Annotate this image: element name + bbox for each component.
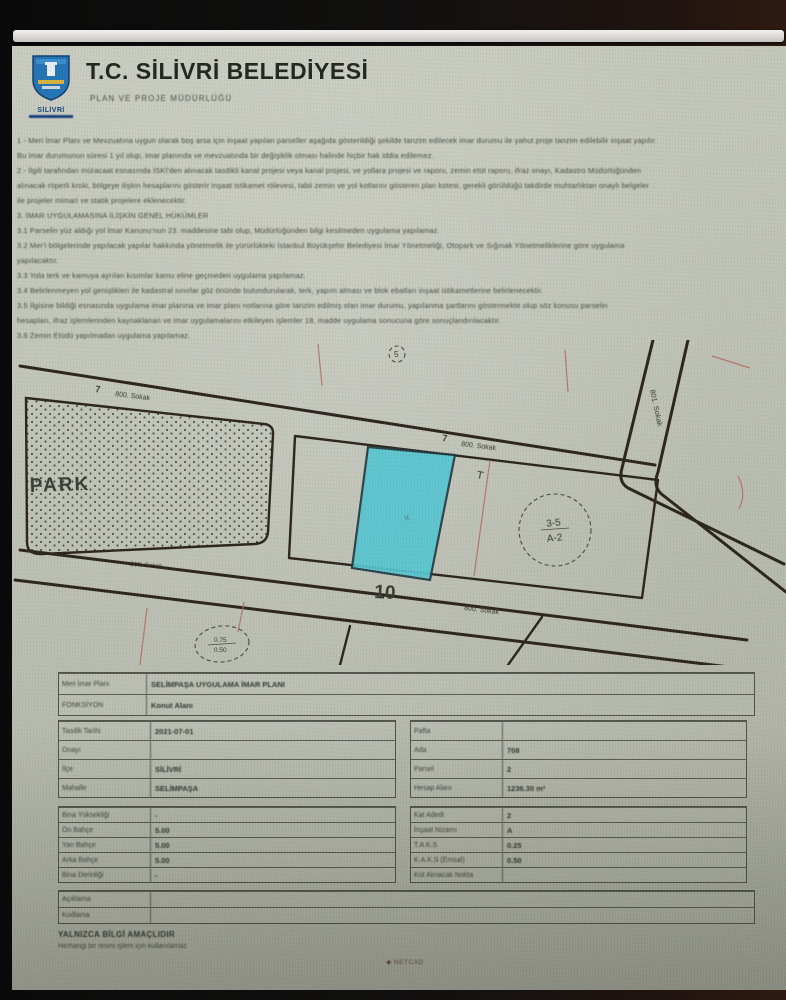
shield-icon — [30, 54, 72, 102]
row-label: K.A.K.S (Emsal) — [411, 853, 503, 867]
cadastral-line — [565, 350, 568, 392]
parcel-id-table: Pafta Ada 708 Parsel 2 Hesap Alanı 1236.… — [410, 720, 747, 798]
row-label: FONKSİYON — [59, 695, 147, 715]
netcad-label: NETCAD — [394, 959, 424, 966]
zoning-circle — [519, 494, 591, 566]
row-label: Ön Bahçe — [59, 823, 151, 837]
row-label: Kodlama — [59, 908, 151, 923]
row-value: 2021-07-01 — [151, 727, 395, 736]
plan-note-line: yapılacaktır. — [17, 256, 781, 271]
cadastral-line — [738, 476, 743, 509]
table-row: Kot Alınacak Nokta — [411, 867, 746, 882]
row-label: İnşaat Nizamı — [411, 823, 503, 837]
row-label: Parsel — [411, 760, 503, 778]
table-row: Açıklama — [59, 891, 754, 907]
netcad-watermark: ◆ NETCAD — [350, 958, 460, 966]
row-label: Bina Yüksekliği — [59, 808, 151, 822]
cadastral-line — [318, 344, 322, 386]
row-label: Bina Derinliği — [59, 868, 151, 882]
approval-location-table: Tasdik Tarihi 2021-07-01 Onayı İlçe SİLİ… — [58, 720, 396, 798]
table-row: Meri İmar Planı SELİMPAŞA UYGULAMA İMAR … — [59, 673, 754, 694]
table-row: Arka Bahçe 5.00 — [59, 852, 395, 867]
disclaimer-subtitle: Herhangi bir resmi işlem için kullanılam… — [58, 943, 187, 950]
row-label: Tasdik Tarihi — [59, 722, 151, 740]
plan-note-line: 3.1 Parselin yüz aldığı yol İmar Kanunu'… — [17, 226, 781, 241]
screen-photo-frame: SİLİVRİ T.C. SİLİVRİ BELEDİYESİ PLAN VE … — [0, 0, 786, 1000]
table-row: K.A.K.S (Emsal) 0.50 — [411, 852, 746, 867]
street-label-middle: 800. Sokak — [461, 441, 497, 452]
table-row: Parsel 2 — [411, 759, 746, 778]
parcel-divider — [340, 626, 350, 665]
row-value: SELİMPAŞA — [151, 784, 395, 793]
row-value: 2 — [503, 765, 746, 774]
plan-note-line: hesapları, ifraz işlemlerinden kaynaklan… — [17, 316, 781, 331]
row-value: 5.00 — [151, 856, 395, 865]
row-value: 5.00 — [151, 841, 395, 850]
row-label: Mahalle — [59, 779, 151, 797]
row-label: Kat Adedi — [411, 808, 503, 822]
plan-note-line: 3.5 İlgisine bildiği esnasında uygulama … — [17, 301, 781, 316]
zoning-note-top: 3-5 — [546, 517, 562, 529]
table-row: Kodlama — [59, 907, 754, 923]
table-row: Kat Adedi 2 — [411, 807, 746, 822]
table-row: Ada 708 — [411, 740, 746, 759]
plan-note-line: 3.3 Yola terk ve kamuya ayrılan kısımlar… — [17, 271, 781, 286]
road-right-edge-1 — [621, 340, 784, 564]
remarks-table: Açıklama Kodlama — [58, 890, 755, 924]
table-row: Yan Bahçe 5.00 — [59, 837, 395, 852]
cadastral-line — [140, 608, 147, 665]
row-label: Arka Bahçe — [59, 853, 151, 867]
diamond-icon: ◆ — [386, 959, 392, 966]
row-label: Onayı — [59, 741, 151, 759]
block-number-10: 10 — [374, 582, 396, 604]
plan-notes-block: 1 - Meri İmar Planı ve Mevzuatına uygun … — [17, 136, 781, 346]
corner-note: 5 — [394, 350, 399, 359]
plan-note-line: Bu imar durumunun süresi 1 yıl olup, ima… — [17, 151, 781, 166]
table-row: Onayı — [59, 740, 395, 759]
block-number-7-left: 7 — [95, 384, 101, 395]
table-row: Hesap Alanı 1236.30 m² — [411, 778, 746, 797]
row-label: Yan Bahçe — [59, 838, 151, 852]
disclaimer-title: YALNIZCA BİLGİ AMAÇLIDIR — [58, 930, 175, 939]
table-row: Ön Bahçe 5.00 — [59, 822, 395, 837]
t-mark: T — [475, 469, 484, 482]
page-subtitle: PLAN VE PROJE MÜDÜRLÜĞÜ — [90, 94, 232, 103]
cadastral-line — [712, 356, 750, 368]
ratio-top: 0.75 — [214, 637, 227, 644]
site-plan-map: PARK ✕ 3-5 A-2 T 7 800. Sokak 7 800. Sok… — [12, 340, 786, 665]
street-label-top: 800. Sokak — [115, 391, 151, 402]
row-value: 2 — [503, 811, 746, 820]
block-number-7-right: 7 — [442, 433, 448, 444]
street-label-bottom: 800. Sokak — [464, 605, 500, 616]
top-scrollbar[interactable] — [13, 30, 784, 42]
row-label: Meri İmar Planı — [59, 674, 147, 694]
table-row: T.A.K.S 0.25 — [411, 837, 746, 852]
imar-durumu-document: SİLİVRİ T.C. SİLİVRİ BELEDİYESİ PLAN VE … — [12, 46, 786, 990]
table-row: İlçe SİLİVRİ — [59, 759, 395, 778]
ratio-bottom: 0.50 — [214, 647, 227, 654]
row-value: 5.00 — [151, 826, 395, 835]
table-row: Pafta — [411, 721, 746, 740]
row-value: - — [151, 871, 395, 880]
row-label: Kot Alınacak Nokta — [411, 868, 503, 882]
plan-note-line: 2 - İlgili tarafından müracaat esnasında… — [17, 166, 781, 181]
row-value: 0.50 — [503, 856, 746, 865]
logo-caption: SİLİVRİ — [26, 107, 76, 114]
plan-note-line: alınacak röperli kroki, bölgeye ilişkin … — [17, 181, 781, 196]
street-label-right: 801. Sokak — [648, 389, 665, 428]
plan-note-line: 3. İMAR UYGULAMASINA İLİŞKİN GENEL HÜKÜM… — [17, 211, 781, 226]
setback-table: Bina Yüksekliği - Ön Bahçe 5.00 Yan Bahç… — [58, 806, 396, 883]
row-value: - — [151, 811, 395, 820]
row-label: Ada — [411, 741, 503, 759]
row-value: A — [503, 826, 746, 835]
plan-note-line: 1 - Meri İmar Planı ve Mevzuatına uygun … — [17, 136, 781, 151]
row-value: SELİMPAŞA UYGULAMA İMAR PLANI — [147, 680, 754, 689]
table-row: Mahalle SELİMPAŞA — [59, 778, 395, 797]
row-label: Pafta — [411, 722, 503, 740]
row-label: Hesap Alanı — [411, 779, 503, 797]
row-value: 708 — [503, 746, 746, 755]
logo-underline — [29, 115, 73, 118]
row-label: İlçe — [59, 760, 151, 778]
zoning-parameters-table: Kat Adedi 2 İnşaat Nizamı A T.A.K.S 0.25… — [410, 806, 747, 883]
row-label: T.A.K.S — [411, 838, 503, 852]
table-row: İnşaat Nizamı A — [411, 822, 746, 837]
municipality-logo: SİLİVRİ — [26, 54, 76, 118]
park-label: PARK — [29, 474, 90, 497]
table-row: FONKSİYON Konut Alanı — [59, 694, 754, 715]
plan-name-table: Meri İmar Planı SELİMPAŞA UYGULAMA İMAR … — [58, 672, 755, 716]
row-value: Konut Alanı — [147, 701, 754, 710]
row-label: Açıklama — [59, 892, 151, 907]
plan-note-line: ile projeler mimari ve statik projelere … — [17, 196, 781, 211]
table-row: Bina Derinliği - — [59, 867, 395, 882]
table-row: Bina Yüksekliği - — [59, 807, 395, 822]
page-title: T.C. SİLİVRİ BELEDİYESİ — [86, 58, 368, 85]
row-value: SİLİVRİ — [151, 765, 395, 774]
plan-note-line: 3.4 Belirlenmeyen yol genişlikleri ile k… — [17, 286, 781, 301]
plan-note-line: 3.2 Mer'i bölgelerinde yapılacak yapılar… — [17, 241, 781, 256]
row-value: 1236.30 m² — [503, 784, 746, 793]
row-value: 0.25 — [503, 841, 746, 850]
table-row: Tasdik Tarihi 2021-07-01 — [59, 721, 395, 740]
block-10-outline — [289, 436, 658, 598]
zoning-note-bottom: A-2 — [546, 532, 563, 545]
